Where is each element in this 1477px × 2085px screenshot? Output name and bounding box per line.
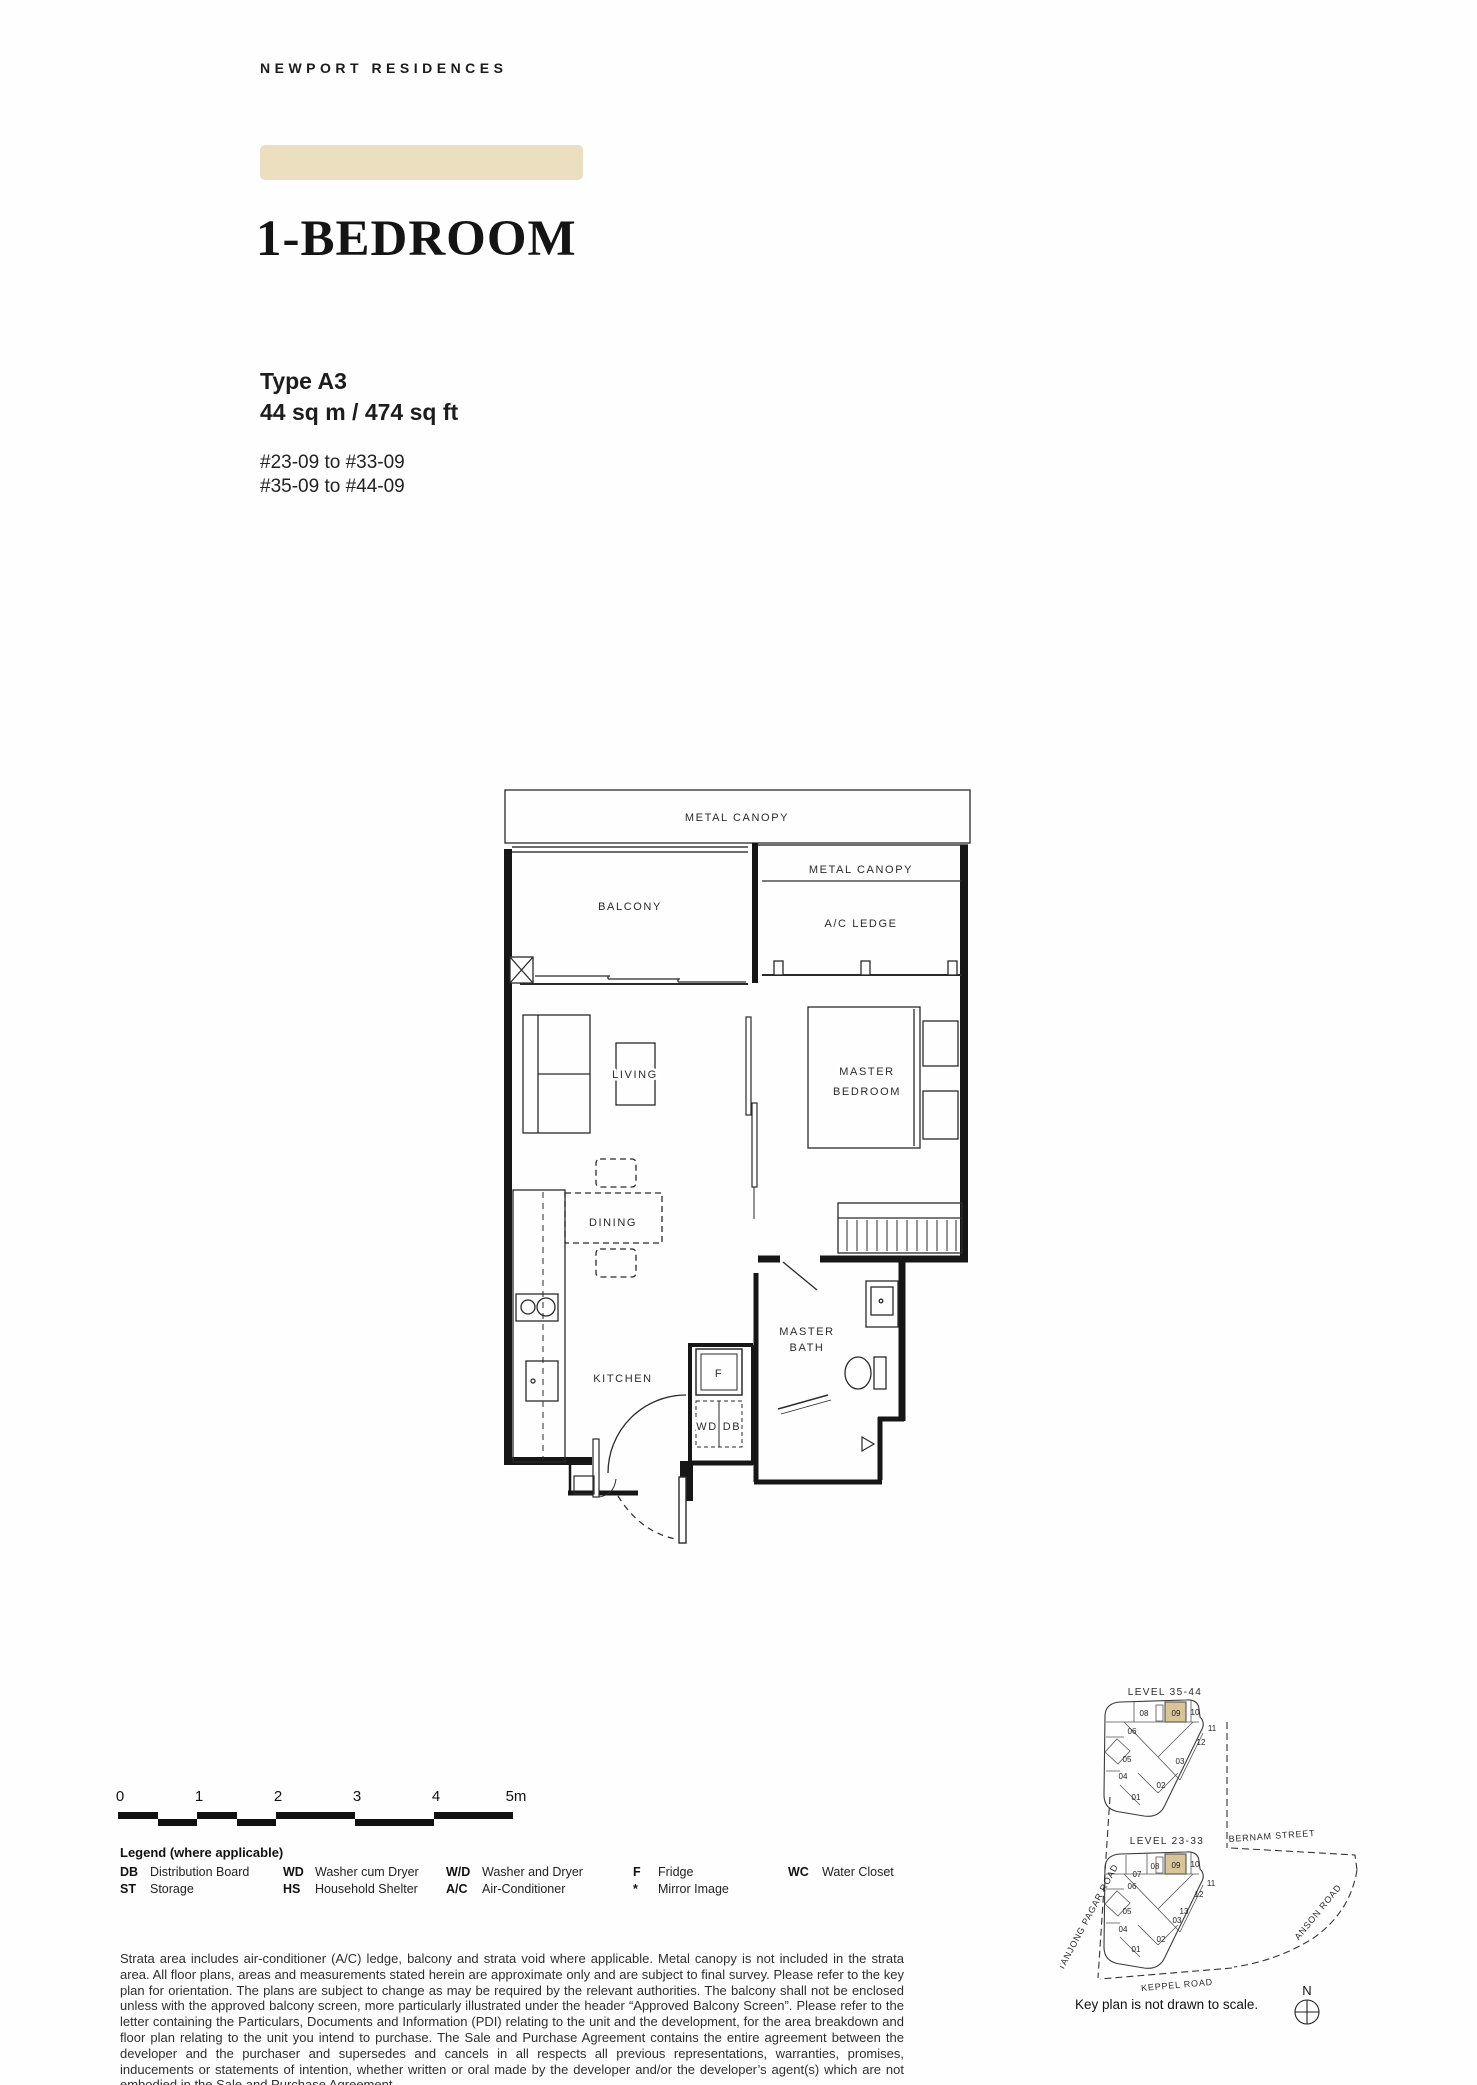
- master-bedroom: MASTER BEDROOM: [783, 1007, 962, 1290]
- dining-chair: [596, 1249, 636, 1277]
- unit-number: 09: [1172, 1861, 1181, 1870]
- balcony-label: BALCONY: [598, 901, 662, 913]
- legend-column: FFridge *Mirror Image: [633, 1864, 729, 1898]
- unit-number: 03: [1173, 1916, 1182, 1925]
- keyplan-lower-level: LEVEL 23-33: [1130, 1836, 1205, 1847]
- street-anson: ANSON ROAD: [1293, 1882, 1344, 1942]
- unit-range-2: #35-09 to #44-09: [260, 475, 405, 499]
- shower-screen: [778, 1395, 828, 1409]
- legend-abbr: WC: [788, 1864, 822, 1881]
- master-bath-label-1: MASTER: [779, 1326, 834, 1338]
- page-title: 1-BEDROOM: [256, 210, 577, 268]
- unit-number: 04: [1119, 1772, 1128, 1781]
- legend-label: Mirror Image: [658, 1882, 729, 1896]
- unit-number: 08: [1140, 1709, 1149, 1718]
- living-room: LIVING: [523, 1015, 658, 1133]
- legend-abbr: DB: [120, 1864, 150, 1881]
- bedside-table: [923, 1021, 958, 1066]
- legend-label: Household Shelter: [315, 1882, 418, 1896]
- compass-n: N: [1302, 1983, 1311, 1998]
- legend-item: WCWater Closet: [788, 1864, 894, 1881]
- keyplan-upper-building: 08 09 10 11 12 06 05 04 03 02 01: [1104, 1700, 1217, 1816]
- street-tanjong-pagar: TANJONG PAGAR ROAD: [1060, 1862, 1120, 1971]
- metal-canopy-label: METAL CANOPY: [685, 812, 789, 824]
- walls: [504, 843, 968, 1501]
- road-lines: [1098, 1722, 1357, 1979]
- unit-number: 07: [1133, 1870, 1142, 1879]
- legend-label: Distribution Board: [150, 1865, 249, 1879]
- key-plan: LEVEL 35-44: [1060, 1665, 1395, 2045]
- balcony: BALCONY: [510, 901, 748, 984]
- unit-number: 10: [1191, 1708, 1200, 1717]
- legend-label: Water Closet: [822, 1865, 894, 1879]
- legend-item: FFridge: [633, 1864, 729, 1881]
- legend-column: DBDistribution Board STStorage: [120, 1864, 249, 1898]
- entry: [574, 1395, 686, 1543]
- legend-label: Fridge: [658, 1865, 693, 1879]
- brochure-page: NEWPORT RESIDENCES 1-BEDROOM Type A3 44 …: [0, 0, 1477, 2085]
- legend-title: Legend (where applicable): [120, 1845, 283, 1860]
- unit-number: 01: [1132, 1793, 1141, 1802]
- fridge-label: F: [715, 1368, 723, 1380]
- keyplan-lower-building: 07 08 09 10 11 12 13 06 05 04 03 02 01: [1104, 1852, 1216, 1968]
- unit-number: 02: [1157, 1781, 1166, 1790]
- living-label: LIVING: [612, 1069, 658, 1081]
- entry-door-swing: [608, 1395, 686, 1473]
- street-bernam: BERNAM STREET: [1228, 1828, 1315, 1844]
- ac-ledge: METAL CANOPY A/C LEDGE: [762, 864, 962, 975]
- unit-area: 44 sq m / 474 sq ft: [260, 399, 458, 426]
- bedside-table: [923, 1091, 958, 1139]
- legend-label: Washer cum Dryer: [315, 1865, 419, 1879]
- entry-door-leaf: [679, 1477, 686, 1543]
- wardrobe: [838, 1203, 962, 1253]
- unit-number: 11: [1207, 1879, 1216, 1888]
- dining: DINING: [565, 1159, 662, 1277]
- unit-number: 08: [1151, 1862, 1160, 1871]
- scale-tick: 2: [274, 1788, 282, 1805]
- unit-number: 02: [1157, 1935, 1166, 1944]
- legend-column: WCWater Closet: [788, 1864, 894, 1881]
- legend-label: Storage: [150, 1882, 194, 1896]
- master-bedroom-label-1: MASTER: [839, 1066, 894, 1078]
- unit-number: 12: [1197, 1738, 1206, 1747]
- scale-tick: 0: [116, 1788, 124, 1805]
- ac-ledge-label: A/C LEDGE: [824, 918, 897, 930]
- shower-marker: [862, 1437, 874, 1451]
- legend-abbr: HS: [283, 1881, 315, 1898]
- unit-number: 06: [1128, 1882, 1137, 1891]
- legend-item: STStorage: [120, 1881, 249, 1898]
- unit-number: 11: [1208, 1724, 1217, 1733]
- legend-abbr: F: [633, 1864, 658, 1881]
- legend-item: WDWasher cum Dryer: [283, 1864, 419, 1881]
- legend-label: Washer and Dryer: [482, 1865, 583, 1879]
- unit-number: 05: [1123, 1755, 1132, 1764]
- unit-number: 05: [1123, 1907, 1132, 1916]
- disclaimer-text: Strata area includes air-conditioner (A/…: [120, 1951, 904, 2085]
- household-shelter: F WD DB: [696, 1349, 742, 1447]
- scale-tick: 1: [195, 1788, 203, 1805]
- legend-label: Air-Conditioner: [482, 1882, 565, 1896]
- compass-icon: N: [1295, 1983, 1319, 2024]
- scale-bar: [118, 1812, 513, 1827]
- legend-column: WDWasher cum Dryer HSHousehold Shelter: [283, 1864, 419, 1898]
- metal-canopy: METAL CANOPY: [505, 790, 970, 843]
- unit-number: 03: [1176, 1757, 1185, 1766]
- sliding-door-partition: [746, 1017, 757, 1219]
- toilet: [845, 1357, 886, 1389]
- dining-label: DINING: [589, 1217, 637, 1229]
- scale-tick: 4: [432, 1788, 440, 1805]
- wd-label: WD: [696, 1421, 718, 1433]
- stove: [516, 1294, 558, 1321]
- unit-number: 10: [1191, 1860, 1200, 1869]
- legend-item: DBDistribution Board: [120, 1864, 249, 1881]
- legend-item: W/DWasher and Dryer: [446, 1864, 583, 1881]
- legend-abbr: A/C: [446, 1881, 482, 1898]
- unit-number: 06: [1128, 1727, 1137, 1736]
- kitchen: KITCHEN: [513, 1190, 653, 1462]
- legend-item: HSHousehold Shelter: [283, 1881, 419, 1898]
- metal-canopy-inner-label: METAL CANOPY: [809, 864, 913, 876]
- dining-chair: [596, 1159, 636, 1187]
- scale-tick: 3: [353, 1788, 361, 1805]
- legend-column: W/DWasher and Dryer A/CAir-Conditioner: [446, 1864, 583, 1898]
- kitchen-counter: [513, 1190, 565, 1462]
- master-bath-label-2: BATH: [790, 1342, 825, 1354]
- unit-ranges: #23-09 to #33-09 #35-09 to #44-09: [260, 451, 405, 499]
- legend-abbr: *: [633, 1881, 658, 1898]
- legend-item: *Mirror Image: [633, 1881, 729, 1898]
- unit-number: 04: [1119, 1925, 1128, 1934]
- floor-plan: METAL CANOPY: [490, 785, 990, 1560]
- legend-abbr: W/D: [446, 1864, 482, 1881]
- db-label: DB: [723, 1421, 741, 1433]
- brand-title: NEWPORT RESIDENCES: [260, 60, 507, 76]
- keyplan-note: Key plan is not drawn to scale.: [1075, 1997, 1258, 2012]
- scale-tick: 5m: [506, 1788, 527, 1805]
- vanity-sink: [866, 1281, 898, 1327]
- unit-number: 01: [1132, 1945, 1141, 1954]
- keyplan-upper-level: LEVEL 35-44: [1128, 1687, 1203, 1698]
- unit-number: 12: [1195, 1890, 1204, 1899]
- legend-item: A/CAir-Conditioner: [446, 1881, 583, 1898]
- accent-bar: [260, 145, 583, 180]
- kitchen-label: KITCHEN: [593, 1373, 652, 1385]
- unit-type: Type A3: [260, 368, 347, 395]
- unit-range-1: #23-09 to #33-09: [260, 451, 405, 475]
- unit-number: 09: [1172, 1709, 1181, 1718]
- legend-abbr: WD: [283, 1864, 315, 1881]
- street-keppel: KEPPEL ROAD: [1141, 1977, 1214, 1993]
- unit-number: 13: [1180, 1907, 1189, 1916]
- sink: [526, 1361, 558, 1401]
- legend-abbr: ST: [120, 1881, 150, 1898]
- master-bedroom-label-2: BEDROOM: [833, 1086, 901, 1098]
- bath-door: [783, 1262, 817, 1290]
